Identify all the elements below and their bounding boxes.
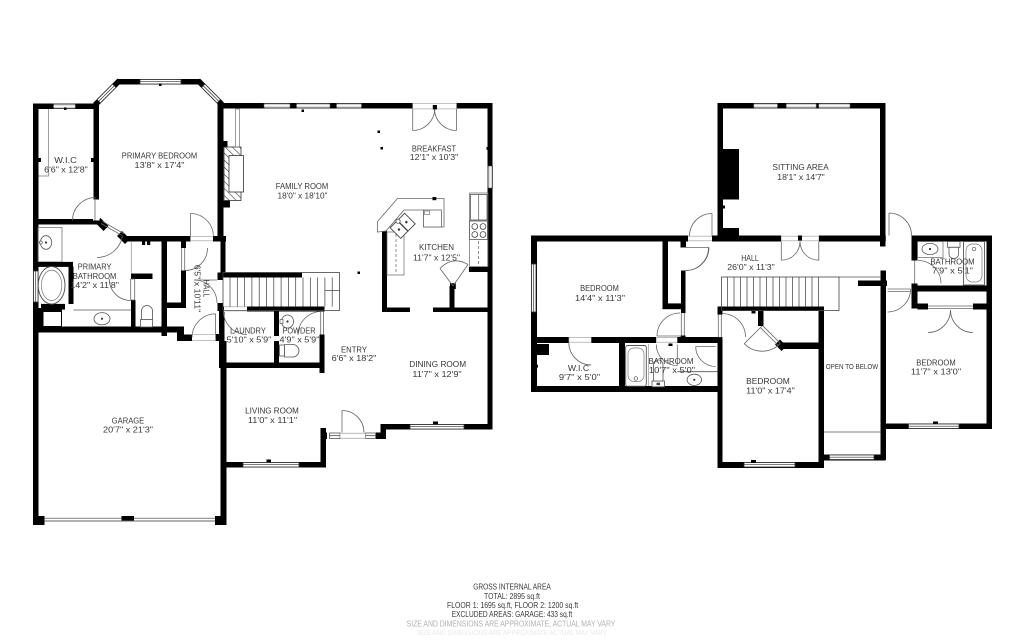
svg-text:POWDER: POWDER <box>283 326 316 335</box>
svg-text:BEDROOM: BEDROOM <box>580 284 619 293</box>
svg-text:18'0" x 18'10": 18'0" x 18'10" <box>278 192 328 201</box>
svg-text:10'7" x 5'0": 10'7" x 5'0" <box>649 366 695 375</box>
svg-text:7'9" x 5'1": 7'9" x 5'1" <box>932 267 973 276</box>
svg-text:6'5" x 10'11": 6'5" x 10'11" <box>193 265 202 313</box>
svg-text:11'0" x 17'4": 11'0" x 17'4" <box>746 387 795 396</box>
svg-text:W.I.C: W.I.C <box>568 364 590 373</box>
svg-text:FAMILY ROOM: FAMILY ROOM <box>276 182 329 191</box>
svg-text:KITCHEN: KITCHEN <box>419 243 454 252</box>
svg-text:DINING ROOM: DINING ROOM <box>409 360 466 369</box>
svg-text:11'0" x 11'1": 11'0" x 11'1" <box>248 416 298 425</box>
svg-text:LIVING ROOM: LIVING ROOM <box>245 407 299 416</box>
svg-text:BREAKFAST: BREAKFAST <box>412 144 456 153</box>
svg-text:6'6" x 12'8": 6'6" x 12'8" <box>44 166 88 175</box>
svg-text:TOTAL: 2895 sq.ft: TOTAL: 2895 sq.ft <box>484 592 541 601</box>
svg-text:13'8" x 17'4": 13'8" x 17'4" <box>135 161 185 170</box>
svg-text:14'2" x 11'8": 14'2" x 11'8" <box>70 281 119 290</box>
svg-text:4'9" x 5'9": 4'9" x 5'9" <box>280 335 320 344</box>
svg-text:OPEN TO BELOW: OPEN TO BELOW <box>826 362 879 371</box>
svg-text:6'6" x 18'2": 6'6" x 18'2" <box>332 354 377 363</box>
svg-text:ENTRY: ENTRY <box>341 345 368 354</box>
svg-text:12'1" x 10'3": 12'1" x 10'3" <box>410 153 459 162</box>
svg-text:14'4" x 11'3": 14'4" x 11'3" <box>575 294 625 303</box>
svg-text:PRIMARY: PRIMARY <box>78 263 112 272</box>
svg-text:11'7" x 13'0": 11'7" x 13'0" <box>911 367 962 376</box>
svg-text:BATHROOM: BATHROOM <box>930 258 974 267</box>
svg-text:LAUNDRY: LAUNDRY <box>230 326 266 335</box>
svg-text:BATHROOM: BATHROOM <box>649 357 694 366</box>
svg-text:11'7" x 12'9": 11'7" x 12'9" <box>412 370 462 379</box>
svg-text:SIZE AND DIMENSIONS ARE APPROX: SIZE AND DIMENSIONS ARE APPROXIMATE, ACT… <box>407 619 616 628</box>
svg-text:GARAGE: GARAGE <box>112 416 145 425</box>
svg-text:BEDROOM: BEDROOM <box>746 377 790 386</box>
svg-text:SITTING AREA: SITTING AREA <box>773 163 830 172</box>
svg-text:W.I.C: W.I.C <box>54 156 77 165</box>
svg-text:26'0" x 11'3": 26'0" x 11'3" <box>727 263 775 272</box>
svg-text:9'7" x 5'0": 9'7" x 5'0" <box>559 373 600 382</box>
svg-text:11'7" x 12'5": 11'7" x 12'5" <box>413 253 460 262</box>
svg-text:PRIMARY BEDROOM: PRIMARY BEDROOM <box>122 152 197 161</box>
svg-text:GROSS INTERNAL AREA: GROSS INTERNAL AREA <box>473 583 551 592</box>
svg-text:18'1" x 14'7": 18'1" x 14'7" <box>777 173 825 182</box>
svg-text:SIZE AND DIMENSIONS ARE APPROX: SIZE AND DIMENSIONS ARE APPROXIMATE ACTU… <box>417 630 607 637</box>
svg-text:FLOOR 1: 1695 sq.ft, FLOOR 2:: FLOOR 1: 1695 sq.ft, FLOOR 2: 1200 sq.ft <box>447 601 579 610</box>
svg-text:BEDROOM: BEDROOM <box>916 358 955 367</box>
svg-text:HALL: HALL <box>202 280 211 298</box>
svg-text:BATHROOM: BATHROOM <box>73 272 117 281</box>
svg-text:EXCLUDED AREAS: GARAGE: 433 sq: EXCLUDED AREAS: GARAGE: 433 sq.ft <box>452 610 573 619</box>
svg-text:20'7" x 21'3": 20'7" x 21'3" <box>103 426 153 435</box>
svg-text:5'10" x 5'9": 5'10" x 5'9" <box>227 335 272 344</box>
svg-text:HALL: HALL <box>741 254 759 263</box>
